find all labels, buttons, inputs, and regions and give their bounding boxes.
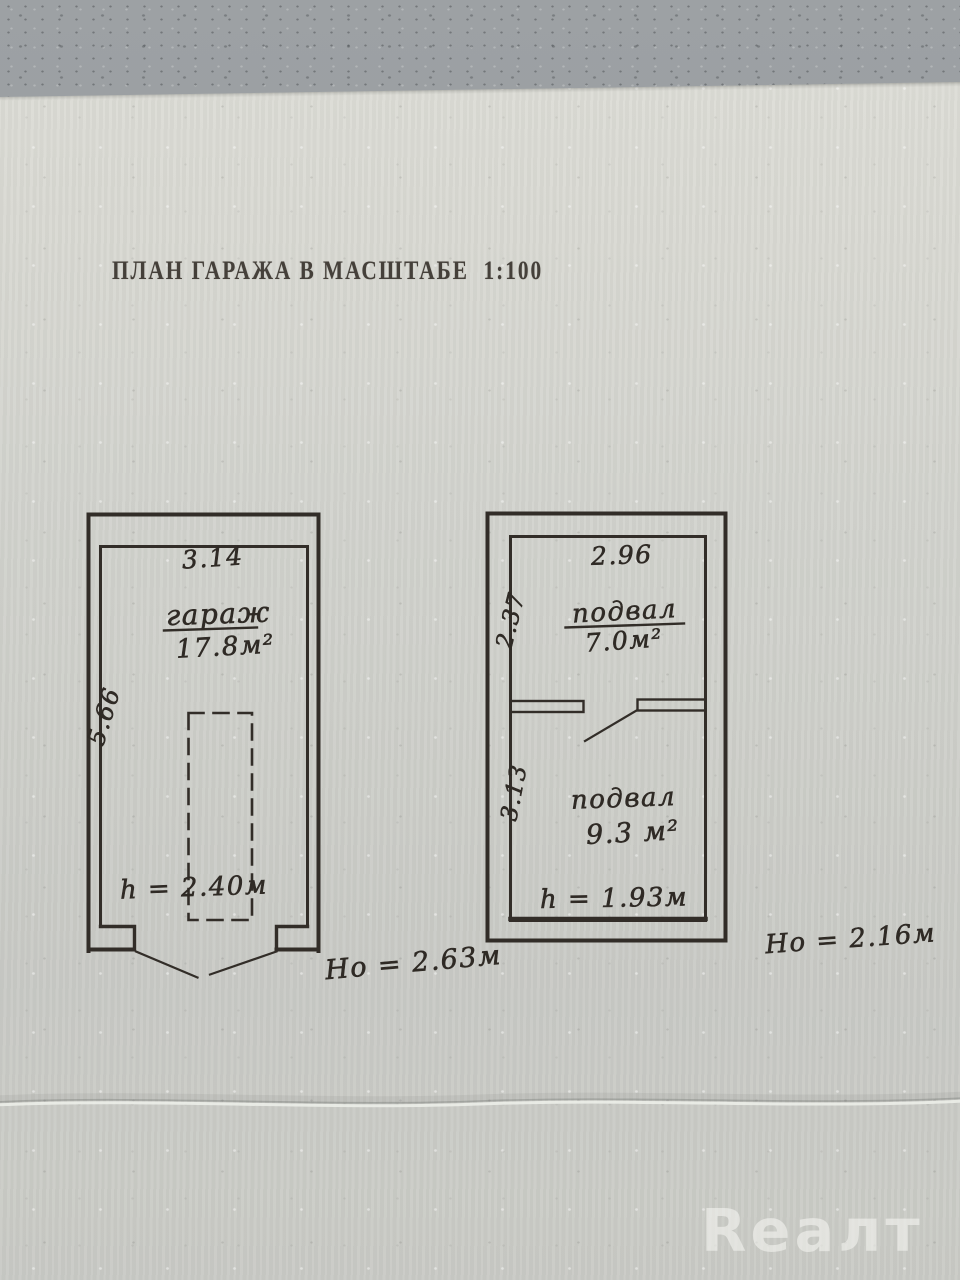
basement-room1-area: 7.0м² bbox=[584, 623, 664, 657]
partition-wall-right-segment bbox=[638, 700, 706, 711]
paper-crease bbox=[0, 1097, 960, 1106]
scanned-garage-plan-photo: ПЛАН ГАРАЖА В МАСШТАБЕ 1:100 3.14 гараж … bbox=[0, 0, 960, 1280]
garage-width-dimension: 3.14 bbox=[181, 541, 245, 574]
paper-sheet: ПЛАН ГАРАЖА В МАСШТАБЕ 1:100 3.14 гараж … bbox=[0, 0, 960, 1280]
garage-overall-height-note: Но = 2.63м bbox=[323, 940, 503, 986]
basement-room2-side-dimension: 3.13 bbox=[496, 762, 532, 823]
garage-gate-pillars bbox=[101, 927, 308, 950]
garage-open-gate-leaves bbox=[136, 952, 277, 978]
basement-room2-name: подвал bbox=[571, 782, 677, 816]
realt-watermark: Reaлт bbox=[701, 1196, 924, 1265]
basement-room1-side-dimension: 2.37 bbox=[491, 590, 530, 653]
garage-room-name: гараж bbox=[165, 596, 271, 633]
garage-floor-plan: 3.14 гараж 17.8м² 5.66 h = 2.40м Но = 2.… bbox=[82, 515, 503, 987]
partition-door-leaf bbox=[585, 711, 637, 742]
floor-plans-drawing: 3.14 гараж 17.8м² 5.66 h = 2.40м Но = 2.… bbox=[0, 0, 960, 1280]
partition-wall-left-segment bbox=[511, 701, 584, 712]
basement-width-dimension: 2.96 bbox=[589, 540, 653, 571]
basement-room2-area: 9.3 м² bbox=[585, 815, 680, 851]
garage-height-note: h = 2.40м bbox=[119, 870, 268, 905]
basement-height-note: h = 1.93м bbox=[540, 882, 689, 915]
basement-floor-plan: 2.96 2.37 подвал 7.0м² 3.13 подвал 9.3 м… bbox=[488, 514, 938, 961]
garage-room-area: 17.8м² bbox=[175, 630, 275, 665]
basement-overall-height-note: Но = 2.16м bbox=[763, 918, 937, 960]
